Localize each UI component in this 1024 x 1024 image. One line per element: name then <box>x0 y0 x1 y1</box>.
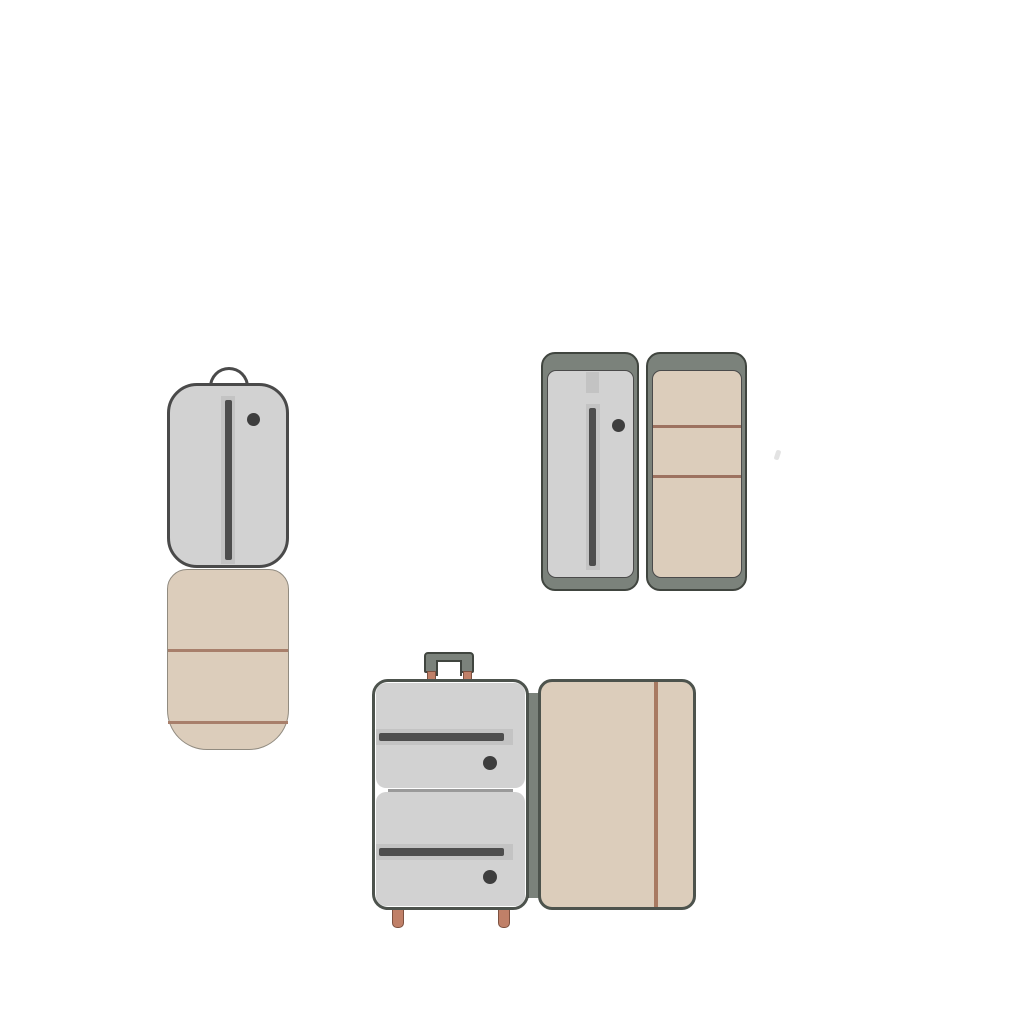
flat-suitcase-strap-1 <box>653 425 741 428</box>
flat-suitcase-zipper-bar <box>589 408 596 566</box>
trolley-handle-cutout <box>436 660 462 676</box>
flat-suitcase-snap-dot <box>612 419 625 432</box>
flat-suitcase-right-liner <box>652 370 742 578</box>
trolley-lid-panel <box>538 679 696 910</box>
garment-bag-trim-line-2 <box>168 721 288 724</box>
illustration-canvas <box>0 0 1024 1024</box>
trolley-upper-snap-dot <box>483 756 497 770</box>
trolley-lower-zipper-bar <box>379 848 504 856</box>
garment-bag-trim-line-1 <box>168 649 288 652</box>
trolley-pocket-divider <box>388 789 513 792</box>
trolley-lower-snap-dot <box>483 870 497 884</box>
trolley-upper-zipper-bar <box>379 733 504 741</box>
trolley-foot-right <box>498 908 510 928</box>
flat-suitcase-strap-2 <box>653 475 741 478</box>
garment-bag-zipper-bar <box>225 400 232 560</box>
flat-suitcase-zipper-tab <box>586 372 599 393</box>
trolley-foot-left <box>392 908 404 928</box>
stray-mark <box>774 449 782 460</box>
trolley-lid-strap-line <box>654 682 658 907</box>
garment-bag-snap-dot <box>247 413 260 426</box>
